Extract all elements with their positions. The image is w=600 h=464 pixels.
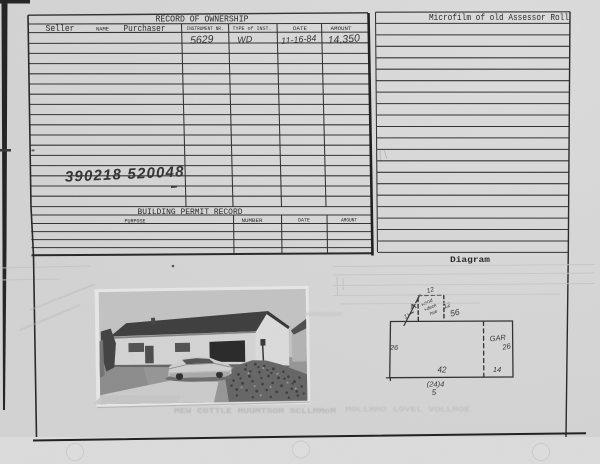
svg-text:PURPOSE: PURPOSE — [125, 218, 146, 224]
svg-text:Diagram: Diagram — [450, 255, 490, 265]
svg-text:DATE: DATE — [293, 26, 307, 32]
svg-text:42: 42 — [438, 365, 447, 374]
svg-text:5629: 5629 — [190, 33, 214, 47]
svg-text:TYPE of INST.: TYPE of INST. — [233, 26, 272, 32]
svg-text:NUMBER: NUMBER — [242, 218, 263, 224]
svg-text:14,350: 14,350 — [327, 32, 360, 46]
svg-text:Seller: Seller — [46, 23, 75, 34]
svg-text:RECORD OF OWNERSHIP: RECORD OF OWNERSHIP — [156, 14, 249, 24]
svg-text:AMOUNT: AMOUNT — [331, 26, 352, 32]
svg-text:INSTRUMENT NR.: INSTRUMENT NR. — [187, 26, 224, 32]
svg-text:5: 5 — [432, 388, 437, 397]
svg-text:Purchaser: Purchaser — [124, 23, 166, 34]
svg-text:MEW COTTLE MUUMTSOM SCLLMMoM: MEW COTTLE MUUMTSOM SCLLMMoM — [174, 408, 337, 416]
svg-text:WD: WD — [237, 34, 253, 45]
svg-text:NAME: NAME — [96, 26, 109, 32]
svg-text:BUILDING PERMIT RECORD: BUILDING PERMIT RECORD — [138, 207, 243, 217]
svg-text:14: 14 — [493, 365, 501, 374]
svg-text:Microfilm of old Assessor Roll: Microfilm of old Assessor Roll — [429, 13, 569, 23]
svg-text:AMOUNT: AMOUNT — [341, 218, 357, 224]
svg-text:MOLLMMO LOVEL VOLLMOE: MOLLMMO LOVEL VOLLMOE — [345, 407, 470, 415]
svg-text:DATE: DATE — [298, 218, 310, 224]
svg-text:26: 26 — [389, 343, 399, 352]
